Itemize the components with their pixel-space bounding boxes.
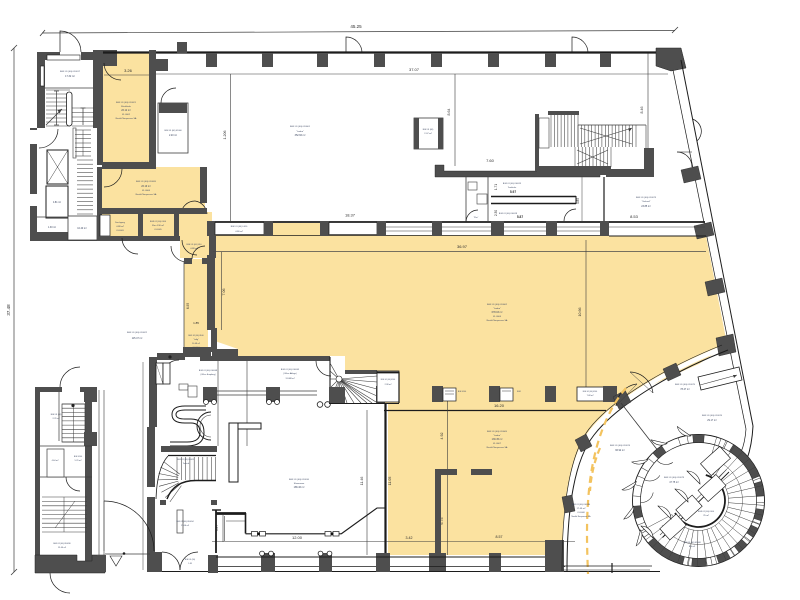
svg-text:(Office Ablage): (Office Ablage) xyxy=(283,372,297,375)
svg-text:BGF 01 (00) 010001: BGF 01 (00) 010001 xyxy=(290,126,311,128)
svg-text:4.85: 4.85 xyxy=(576,198,580,204)
svg-text:BGF 01 (00) 010019: BGF 01 (00) 010019 xyxy=(503,183,522,185)
svg-text:"Laden": "Laden" xyxy=(296,131,304,133)
svg-text:678.03 m²: 678.03 m² xyxy=(492,311,503,314)
svg-text:2.20 m²: 2.20 m² xyxy=(169,134,177,137)
svg-text:31.088 m²: 31.088 m² xyxy=(285,377,294,380)
svg-text:BGF 01 (00) 01000: BGF 01 (00) 01000 xyxy=(164,130,182,132)
svg-text:2.30: 2.30 xyxy=(494,210,498,216)
svg-text:BGF 01 (00) 0 010: BGF 01 (00) 0 010 xyxy=(231,226,248,228)
svg-text:BGF 01 (00) 0100: BGF 01 (00) 0100 xyxy=(381,379,395,381)
svg-text:Showroom: Showroom xyxy=(294,482,305,485)
svg-text:Technik: Technik xyxy=(183,463,189,465)
svg-text:5.87: 5.87 xyxy=(517,215,523,219)
svg-text:1.85: 1.85 xyxy=(193,321,199,325)
svg-text:29.17 m²: 29.17 m² xyxy=(707,419,717,422)
svg-text:96.92 m²: 96.92 m² xyxy=(615,449,625,452)
svg-text:BGF 01 (00) 010014: BGF 01 (00) 010014 xyxy=(176,521,193,523)
svg-text:26.12 m²: 26.12 m² xyxy=(121,109,131,112)
svg-text:10.40 m²: 10.40 m² xyxy=(77,227,87,230)
svg-text:115.47 m²: 115.47 m² xyxy=(132,337,143,340)
svg-text:3.42: 3.42 xyxy=(406,536,413,540)
svg-text:4.80 m²: 4.80 m² xyxy=(235,230,243,233)
svg-text:78.47 m²: 78.47 m² xyxy=(680,388,690,391)
svg-text:01.0006: 01.0006 xyxy=(142,190,151,192)
svg-text:Teeküche: Teeküche xyxy=(508,187,517,189)
svg-text:10.08 m²: 10.08 m² xyxy=(192,342,200,345)
svg-text:1.206: 1.206 xyxy=(223,131,227,140)
svg-text:6.95: 6.95 xyxy=(186,303,190,309)
svg-text:BGF 01 (00): BGF 01 (00) xyxy=(423,129,434,131)
svg-text:BGF 01 (00) 010008: BGF 01 (00) 010008 xyxy=(199,370,218,372)
svg-text:7.60: 7.60 xyxy=(486,158,495,163)
svg-text:BGF 01 (00) 010005: BGF 01 (00) 010005 xyxy=(487,431,508,433)
svg-text:2.07 m²: 2.07 m² xyxy=(424,132,432,135)
svg-text:BGF 01 (00) 010016: BGF 01 (00) 010016 xyxy=(53,543,70,545)
svg-text:25 m²: 25 m² xyxy=(703,514,709,517)
svg-text:186.46 m²: 186.46 m² xyxy=(294,486,305,489)
svg-text:8.57: 8.57 xyxy=(496,535,503,539)
svg-text:BGF 01 (00) 010010: BGF 01 (00) 010010 xyxy=(289,479,310,481)
svg-text:15.44 m²: 15.44 m² xyxy=(58,546,67,549)
svg-text:01.0002: 01.0002 xyxy=(122,114,131,116)
svg-text:Nestlé Nespresso SA: Nestlé Nespresso SA xyxy=(571,515,591,518)
svg-text:17.43 m²: 17.43 m² xyxy=(577,507,586,510)
svg-text:45.25: 45.25 xyxy=(350,24,362,29)
svg-text:"Laden": "Laden" xyxy=(493,435,501,437)
svg-text:"Vorhauf": "Vorhauf" xyxy=(641,200,650,203)
svg-text:12.00: 12.00 xyxy=(292,535,303,540)
svg-text:01.0005: 01.0005 xyxy=(154,229,162,231)
svg-text:BGF 01 (00) 010013: BGF 01 (00) 010013 xyxy=(177,459,194,461)
svg-text:BGF 01 (00) 010073: BGF 01 (00) 010073 xyxy=(636,197,657,199)
svg-text:BGF 01 (00) 010009: BGF 01 (00) 010009 xyxy=(281,369,300,371)
svg-text:8.64: 8.64 xyxy=(447,109,451,116)
svg-text:BGF 01 (00) 01008: BGF 01 (00) 01008 xyxy=(683,542,701,544)
svg-text:1.48: 1.48 xyxy=(188,563,192,565)
svg-text:BGF 0100: BGF 0100 xyxy=(74,456,82,458)
svg-text:BGF 01 (00) 010075: BGF 01 (00) 010075 xyxy=(675,384,696,386)
svg-text:139.45 m²: 139.45 m² xyxy=(492,438,503,441)
svg-text:Nestlé Nespresso SA: Nestlé Nespresso SA xyxy=(116,117,137,120)
svg-text:8.46: 8.46 xyxy=(640,107,644,114)
svg-text:BGF 01 (00) 010076: BGF 01 (00) 010076 xyxy=(702,415,723,417)
svg-text:4.88 m²: 4.88 m² xyxy=(116,225,124,228)
svg-text:4.81 m²: 4.81 m² xyxy=(53,201,61,204)
svg-text:(Office Empfang): (Office Empfang) xyxy=(200,374,215,376)
svg-text:BGF 01 (00): BGF 01 (00) xyxy=(51,414,62,416)
svg-text:7.06: 7.06 xyxy=(222,289,226,296)
svg-text:10.66: 10.66 xyxy=(578,308,582,317)
svg-text:18.37: 18.37 xyxy=(345,213,356,218)
svg-text:Durchgang: Durchgang xyxy=(115,222,125,224)
svg-text:4.64 m²: 4.64 m² xyxy=(52,459,59,462)
svg-text:Nestlé Nespresso SA: Nestlé Nespresso SA xyxy=(487,446,508,449)
svg-text:"Luftg": "Luftg" xyxy=(193,338,199,341)
svg-text:"Flur": "Flur" xyxy=(474,217,479,219)
svg-text:5.97: 5.97 xyxy=(510,190,516,194)
svg-text:BGF 01 (00) 010017: BGF 01 (00) 010017 xyxy=(60,71,81,73)
svg-text:352.66 m²: 352.66 m² xyxy=(295,134,306,137)
svg-text:Rückläufe: Rückläufe xyxy=(121,106,132,108)
svg-text:5.76 m²: 5.76 m² xyxy=(75,459,82,462)
svg-text:47.75 m²: 47.75 m² xyxy=(669,481,679,484)
svg-text:BGF 01 (00) 010079: BGF 01 (00) 010079 xyxy=(664,477,685,479)
svg-text:BGF 01 (00) 0100: BGF 01 (00) 0100 xyxy=(698,511,715,513)
svg-text:BGF 01 (00) 010021: BGF 01 (00) 010021 xyxy=(116,102,137,104)
svg-text:11.05: 11.05 xyxy=(388,477,392,486)
svg-text:BGF 01 (00) 010002: BGF 01 (00) 010002 xyxy=(487,304,508,306)
svg-text:17.32 m²: 17.32 m² xyxy=(65,75,75,78)
svg-text:8.4 m²: 8.4 m² xyxy=(689,545,695,548)
svg-text:BGF 01 (00) 010022: BGF 01 (00) 010022 xyxy=(127,332,148,334)
svg-text:Nestlé Nespresso SA: Nestlé Nespresso SA xyxy=(136,193,157,196)
svg-text:BGF 01 (00): BGF 01 (00) xyxy=(185,559,195,561)
svg-text:8.53: 8.53 xyxy=(630,214,639,219)
svg-text:1.71: 1.71 xyxy=(494,184,498,190)
svg-text:36.97: 36.97 xyxy=(457,244,468,249)
svg-text:BGF 01 (00) 010080: BGF 01 (00) 010080 xyxy=(572,504,591,506)
svg-text:BGF 01 (00) 0100: BGF 01 (00) 0100 xyxy=(150,221,167,223)
svg-text:Flur 4.30 m²: Flur 4.30 m² xyxy=(152,224,164,227)
svg-text:37.48: 37.48 xyxy=(6,304,11,316)
svg-text:1.30 m²: 1.30 m² xyxy=(48,226,56,229)
svg-text:BGF 01 (00) 010020: BGF 01 (00) 010020 xyxy=(136,181,157,183)
svg-text:3.26: 3.26 xyxy=(124,68,133,73)
svg-text:Nestlé Nespresso SA: Nestlé Nespresso SA xyxy=(487,319,508,322)
svg-text:01.0003: 01.0003 xyxy=(116,230,124,232)
svg-text:2.38 m²: 2.38 m² xyxy=(385,383,392,386)
svg-text:11.46: 11.46 xyxy=(360,477,364,486)
svg-text:16.20: 16.20 xyxy=(494,403,505,408)
svg-text:BGF 01 (00) 010: BGF 01 (00) 010 xyxy=(187,244,203,246)
svg-text:BGF 01 (00) 0100: BGF 01 (00) 0100 xyxy=(188,335,203,337)
svg-text:01.0007: 01.0007 xyxy=(493,443,502,445)
svg-text:BGF 01 (00) 0100: BGF 01 (00) 0100 xyxy=(583,391,597,393)
svg-text:26.19 m²: 26.19 m² xyxy=(141,185,151,188)
svg-text:01.0004: 01.0004 xyxy=(493,316,502,318)
svg-text:17.06 m²: 17.06 m² xyxy=(181,524,190,527)
svg-text:01.0008: 01.0008 xyxy=(577,512,585,514)
svg-text:BGF 01 (00) 010074: BGF 01 (00) 010074 xyxy=(610,445,631,447)
svg-text:7.48 m²: 7.48 m² xyxy=(587,394,594,397)
svg-text:BGF 0100: BGF 0100 xyxy=(458,391,466,393)
svg-text:BGF 01 (00) 010018: BGF 01 (00) 010018 xyxy=(499,213,518,215)
svg-text:37.07: 37.07 xyxy=(409,67,420,72)
svg-text:"Laden": "Laden" xyxy=(493,308,501,310)
svg-text:4.92: 4.92 xyxy=(440,433,444,440)
svg-text:23.85 m²: 23.85 m² xyxy=(641,205,651,208)
